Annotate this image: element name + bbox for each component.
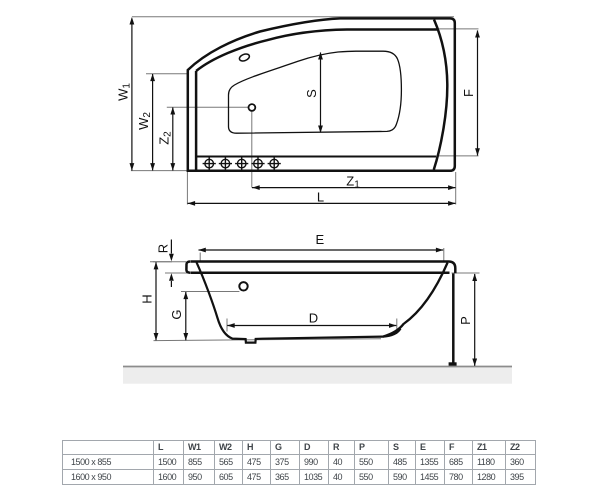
svg-text:G: G — [169, 309, 184, 319]
svg-text:L: L — [317, 190, 324, 205]
svg-text:W1: W1 — [115, 83, 132, 101]
svg-text:D: D — [309, 311, 318, 326]
svg-text:Z1: Z1 — [346, 173, 360, 190]
svg-text:W2: W2 — [136, 112, 153, 130]
svg-text:S: S — [304, 89, 319, 98]
svg-text:R: R — [155, 244, 170, 253]
svg-text:P: P — [458, 316, 473, 325]
svg-text:F: F — [461, 89, 476, 97]
svg-text:E: E — [315, 232, 324, 247]
svg-text:Z2: Z2 — [156, 131, 173, 145]
svg-text:H: H — [140, 294, 155, 303]
